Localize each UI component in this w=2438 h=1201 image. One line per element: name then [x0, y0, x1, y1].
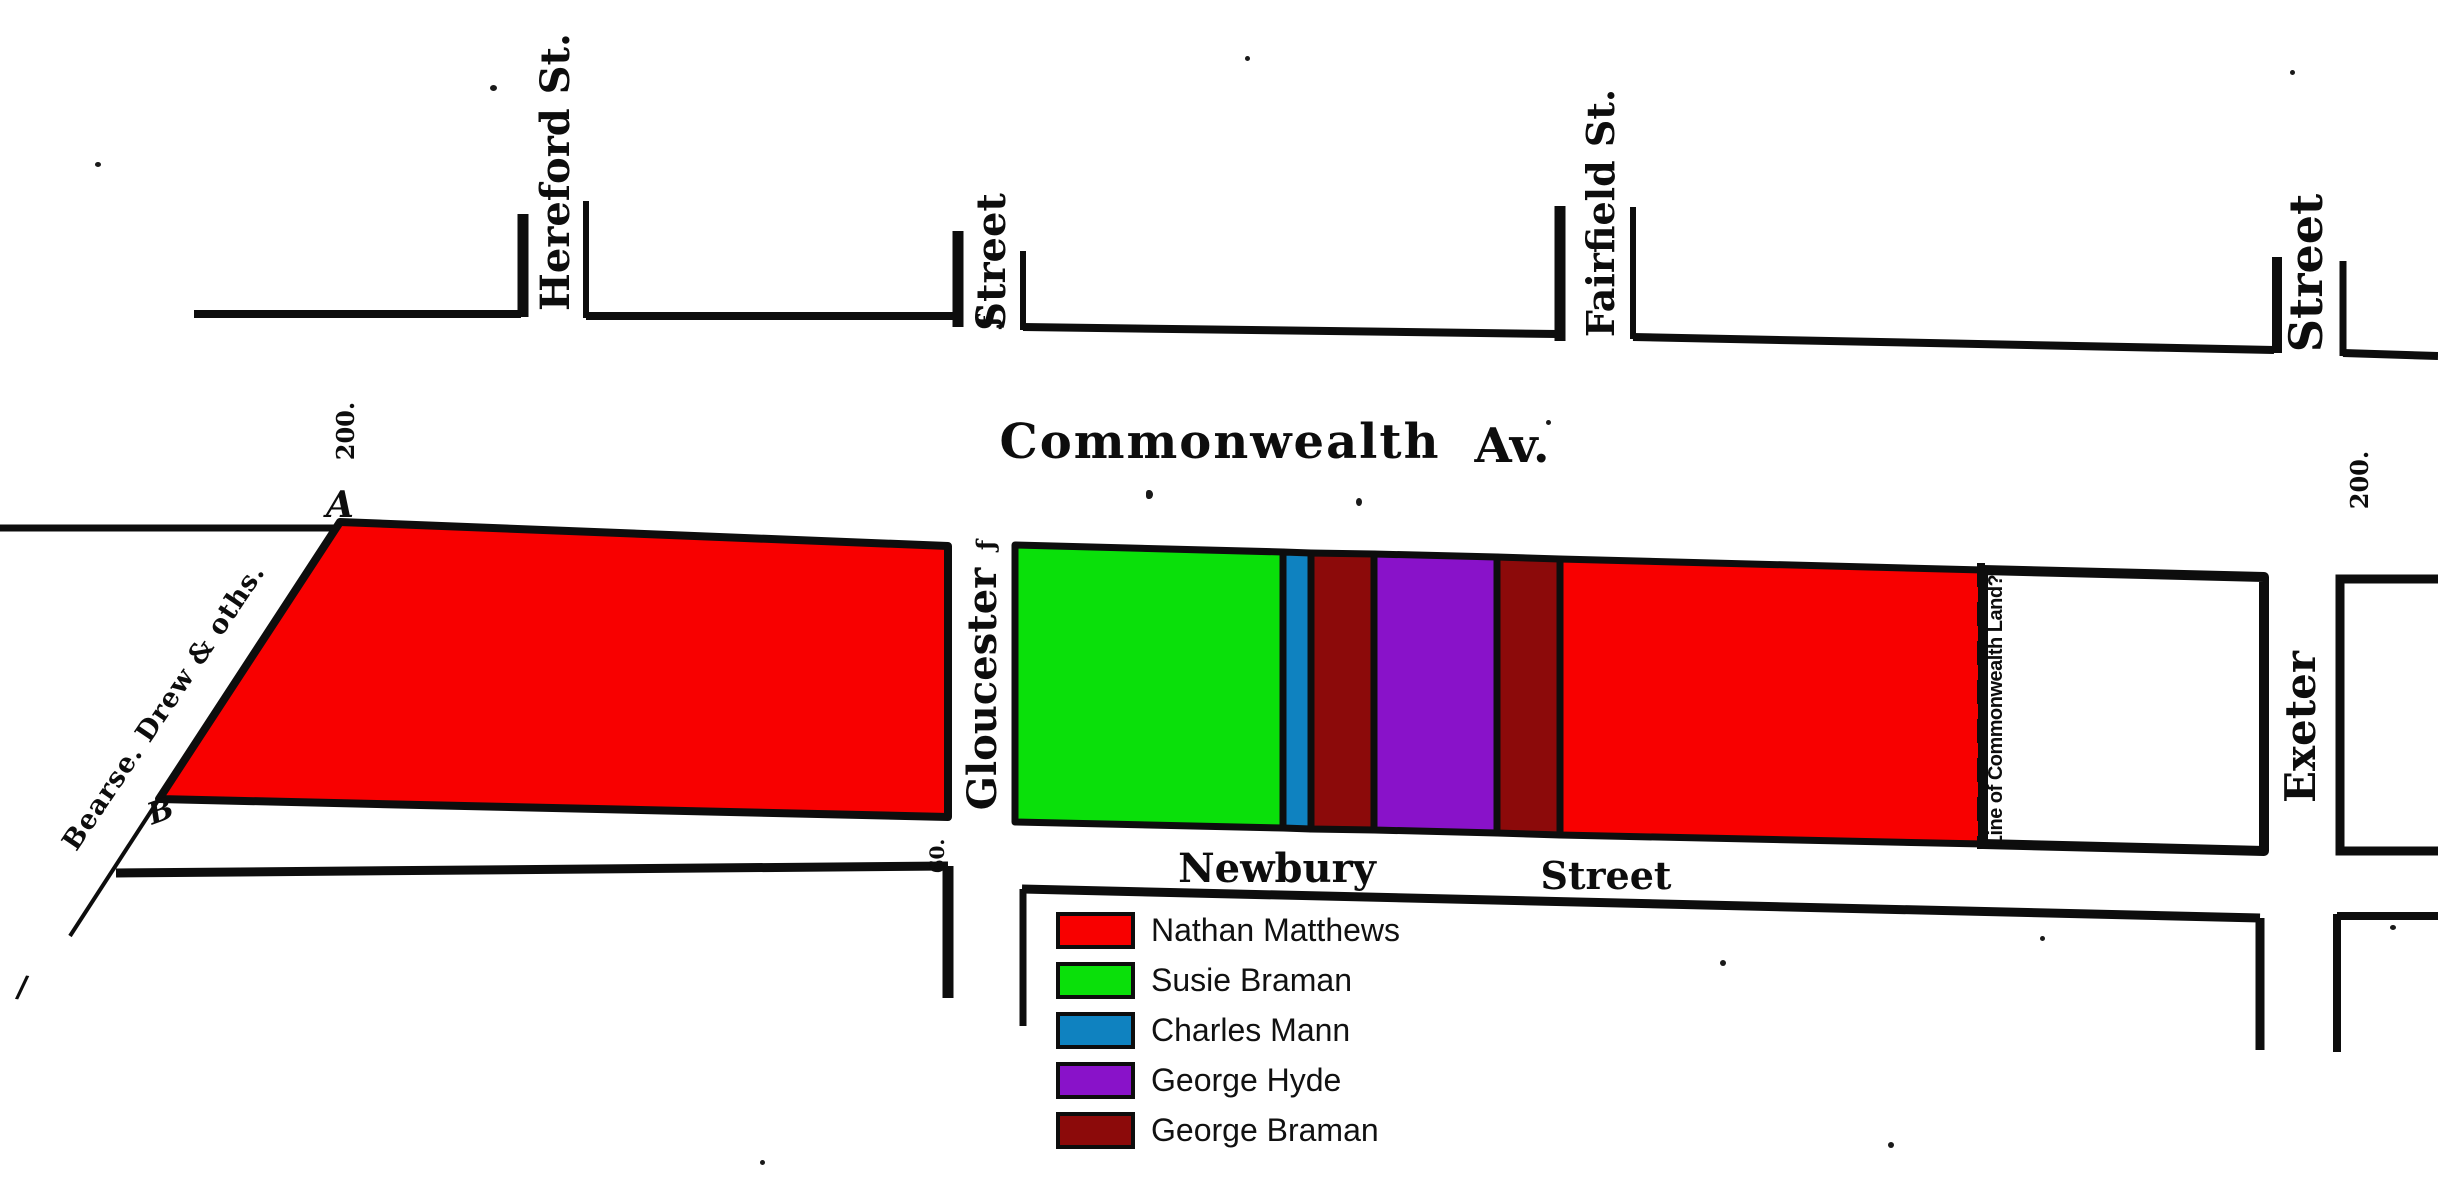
street-label-gloucester: Gloucester: [963, 568, 1003, 810]
parcel-susie-braman: [1015, 545, 1283, 828]
north-block-line-4: [1633, 337, 2274, 350]
ink-speck: [1720, 960, 1726, 966]
parcel-unassigned-white: [1983, 570, 2264, 851]
legend-swatch-purple-icon: [1056, 1062, 1135, 1099]
parcel-george-braman-east: [1497, 557, 1560, 835]
legend-swatch-maroon-icon: [1056, 1112, 1135, 1149]
ink-speck: [1356, 498, 1362, 506]
ink-speck: [1146, 490, 1153, 499]
street-label-exeter: Exeter: [2280, 651, 2322, 803]
survey-mark-gloucester-icon: ƒ: [974, 540, 998, 550]
ink-speck: [1245, 56, 1250, 61]
parcel-charles-mann: [1283, 552, 1311, 829]
newbury-north-line-west: [116, 866, 948, 873]
legend-row-george-braman: George Braman: [1056, 1112, 1400, 1149]
ink-speck: [2290, 70, 2295, 75]
street-label-newbury-street: Street: [1541, 857, 1672, 895]
street-label-fairfield: Fairfield St.: [1582, 89, 1620, 337]
north-block-line-5: [2343, 353, 2438, 356]
ink-speck: [490, 85, 497, 91]
legend-row-nathan-matthews: Nathan Matthews: [1056, 912, 1400, 949]
legend-swatch-blue-icon: [1056, 1012, 1135, 1049]
legend-row-charles-mann: Charles Mann: [1056, 1012, 1400, 1049]
dimension-200-west: 200.: [334, 402, 358, 460]
legend-row-susie-braman: Susie Braman: [1056, 962, 1400, 999]
legend-swatch-red-icon: [1056, 912, 1135, 949]
parcel-george-hyde: [1374, 554, 1497, 833]
legend-label: Charles Mann: [1151, 1012, 1350, 1049]
ink-speck: [760, 1160, 765, 1165]
dimension-200-east: 200.: [2348, 451, 2372, 509]
ink-speck: [1546, 420, 1551, 425]
commonwealth-land-note: Line of Commonwealth Land?: [1986, 575, 2006, 848]
street-label-top-right: Street: [2283, 194, 2329, 352]
survey-point-a: A: [326, 487, 354, 523]
parcel-nathan-matthews-west: [159, 522, 948, 817]
parcel-george-braman-west: [1311, 553, 1374, 830]
street-label-newbury: Newbury: [1178, 849, 1376, 889]
parcel-nathan-matthews-east: [1560, 559, 1983, 844]
north-block-line-3: [1023, 327, 1557, 334]
east-block-outline: [2340, 579, 2438, 851]
legend-label: George Braman: [1151, 1112, 1379, 1149]
plat-map-canvas: Hereford St. Street ƒ Fairfield St. Stre…: [0, 0, 2438, 1201]
survey-mark-top-icon: ƒ: [976, 315, 1002, 326]
legend: Nathan Matthews Susie Braman Charles Man…: [1056, 912, 1400, 1149]
legend-label: Nathan Matthews: [1151, 912, 1400, 949]
street-label-top-mid: Street: [972, 193, 1012, 331]
legend-row-george-hyde: George Hyde: [1056, 1062, 1400, 1099]
legend-label: George Hyde: [1151, 1062, 1341, 1099]
legend-label: Susie Braman: [1151, 962, 1352, 999]
ink-speck: [95, 162, 101, 167]
ink-speck: [1888, 1142, 1894, 1148]
street-label-hereford: Hereford St.: [536, 33, 576, 311]
street-label-av: Av.: [1474, 422, 1549, 470]
dimension-60: 60.: [927, 839, 947, 874]
street-label-commonwealth: Commonwealth: [1000, 418, 1441, 466]
ink-speck: [2390, 925, 2396, 930]
ink-speck: [2040, 936, 2045, 941]
legend-swatch-green-icon: [1056, 962, 1135, 999]
